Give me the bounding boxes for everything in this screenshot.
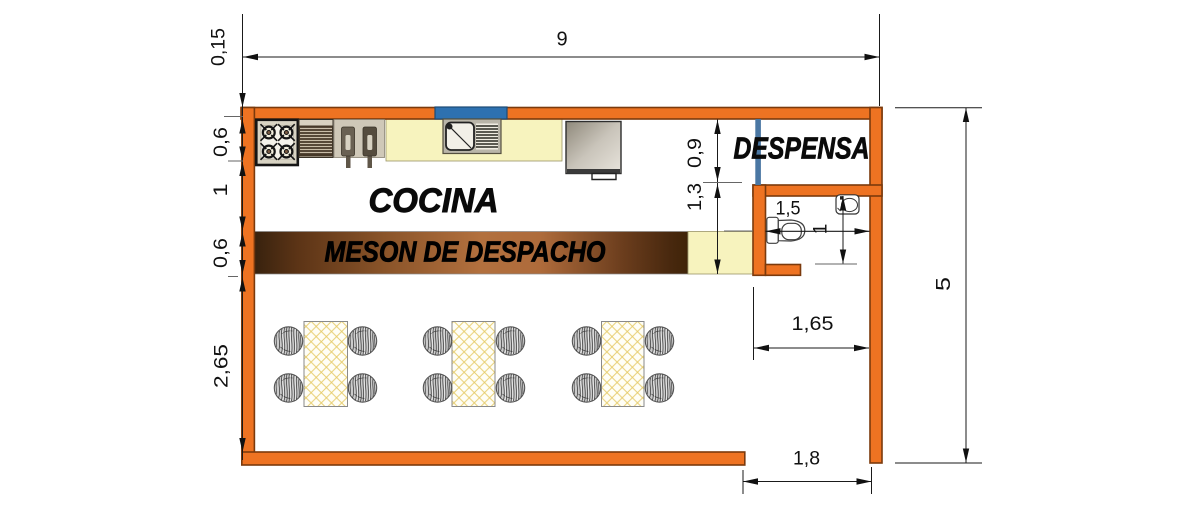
svg-text:1,3: 1,3 — [685, 183, 706, 211]
svg-text:5: 5 — [933, 277, 955, 291]
svg-text:COCINA: COCINA — [369, 182, 499, 220]
svg-text:1: 1 — [811, 224, 832, 235]
svg-text:0,9: 0,9 — [685, 138, 706, 168]
svg-text:1,65: 1,65 — [792, 314, 834, 335]
svg-text:2,65: 2,65 — [212, 344, 233, 388]
svg-text:0,6: 0,6 — [211, 238, 232, 268]
svg-text:0,6: 0,6 — [211, 127, 232, 157]
svg-text:9: 9 — [556, 29, 567, 51]
svg-text:DESPENSA: DESPENSA — [734, 132, 870, 166]
svg-text:1: 1 — [211, 184, 232, 197]
svg-text:1,8: 1,8 — [793, 449, 820, 470]
svg-text:MESON DE DESPACHO: MESON DE DESPACHO — [325, 237, 606, 269]
svg-text:1,5: 1,5 — [776, 199, 801, 220]
svg-text:0,15: 0,15 — [209, 28, 230, 66]
